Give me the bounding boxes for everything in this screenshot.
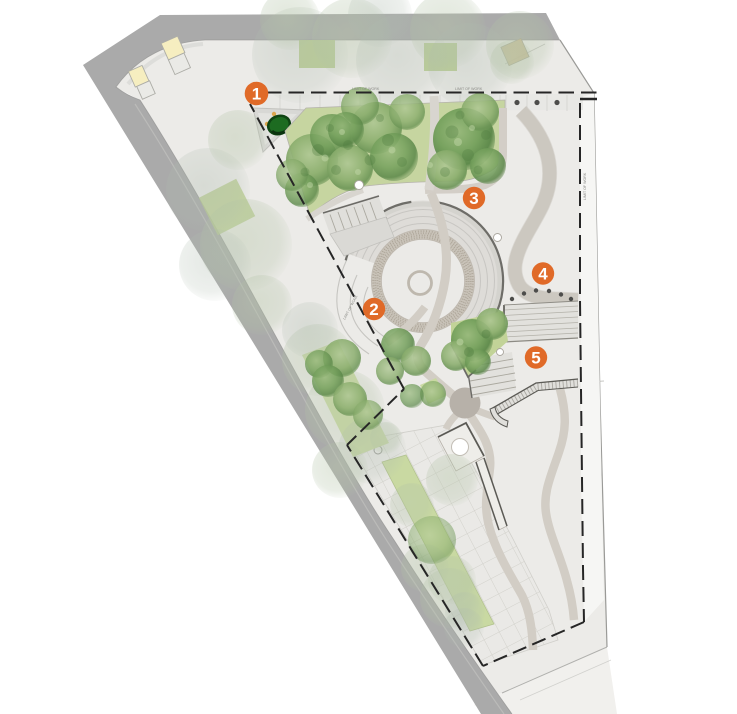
svg-text:4: 4 bbox=[538, 265, 548, 284]
svg-text:LIMIT OF WORK: LIMIT OF WORK bbox=[352, 87, 380, 91]
svg-text:3: 3 bbox=[469, 189, 478, 208]
svg-text:2: 2 bbox=[369, 300, 378, 319]
svg-text:LIMIT OF WORK: LIMIT OF WORK bbox=[583, 172, 587, 200]
svg-text:LIMIT OF WORK: LIMIT OF WORK bbox=[455, 87, 483, 91]
svg-text:1: 1 bbox=[252, 85, 261, 104]
svg-text:5: 5 bbox=[531, 349, 540, 368]
